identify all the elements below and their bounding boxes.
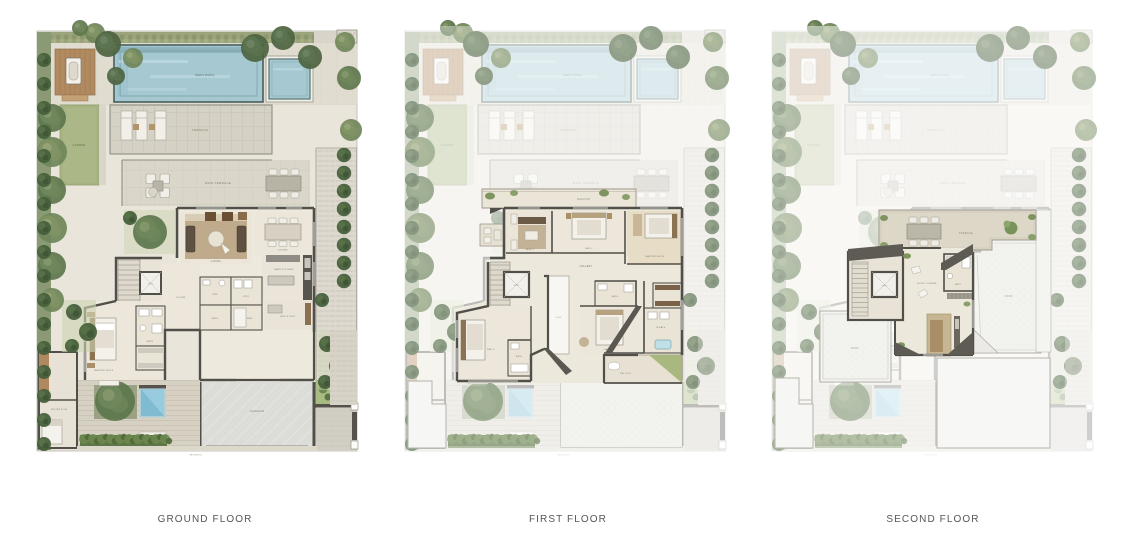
svg-text:BALCONY: BALCONY	[620, 372, 632, 375]
svg-text:BATH: BATH	[955, 283, 961, 286]
svg-text:TERRACE: TERRACE	[959, 232, 973, 235]
svg-text:BED 2: BED 2	[585, 248, 593, 250]
svg-text:PWD: PWD	[212, 294, 218, 296]
svg-text:BED STUDY: BED STUDY	[280, 316, 295, 318]
svg-text:MAIN TERRACE: MAIN TERRACE	[205, 181, 231, 185]
svg-text:LIFT: LIFT	[148, 284, 154, 286]
svg-text:FAMILY: FAMILY	[525, 248, 534, 251]
svg-text:LIFT: LIFT	[882, 286, 888, 288]
svg-text:GARAGE: GARAGE	[250, 409, 265, 413]
svg-text:BATH: BATH	[612, 295, 619, 298]
svg-text:ROOF: ROOF	[1005, 295, 1013, 298]
svg-text:LNDY: LNDY	[243, 296, 250, 298]
svg-text:TERRACE: TERRACE	[192, 128, 208, 132]
svg-text:GARDEN: GARDEN	[73, 143, 86, 147]
svg-text:MASTER SUITE: MASTER SUITE	[95, 369, 114, 372]
svg-text:ROOF LOUNGE: ROOF LOUNGE	[917, 283, 937, 285]
svg-text:LIFT: LIFT	[514, 285, 520, 287]
svg-text:BED 3: BED 3	[487, 349, 495, 351]
svg-text:BATH: BATH	[516, 355, 522, 358]
svg-text:MAIN KITCHEN: MAIN KITCHEN	[274, 268, 293, 271]
svg-text:FOYER: FOYER	[176, 297, 185, 299]
svg-text:M.BATH: M.BATH	[657, 326, 666, 329]
svg-text:DRIVER'S RM: DRIVER'S RM	[51, 409, 67, 411]
svg-text:LIVING: LIVING	[211, 260, 221, 263]
svg-text:MASTER SUITE: MASTER SUITE	[646, 255, 665, 258]
svg-text:PAVEMENT: PAVEMENT	[189, 454, 203, 457]
svg-text:MAID: MAID	[247, 317, 253, 320]
svg-text:BATH: BATH	[212, 317, 219, 320]
svg-text:GALLERY: GALLERY	[580, 265, 593, 268]
svg-text:BATH: BATH	[147, 340, 154, 343]
svg-text:DINING: DINING	[278, 250, 287, 252]
svg-text:VOID: VOID	[555, 317, 561, 319]
svg-text:BALCONY: BALCONY	[577, 198, 591, 201]
svg-text:ROOF: ROOF	[851, 347, 859, 350]
svg-text:MAIN POOL: MAIN POOL	[195, 73, 214, 77]
